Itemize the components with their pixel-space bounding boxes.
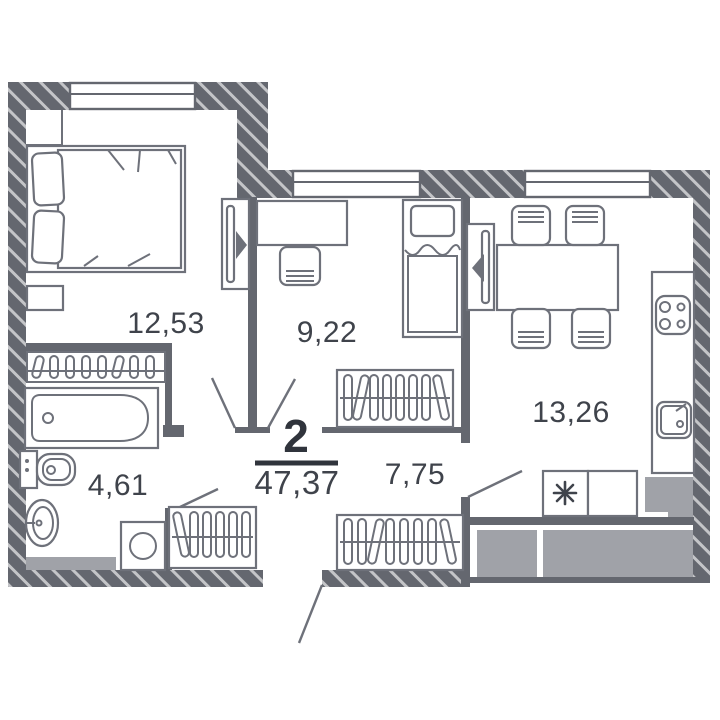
kitchen [467,206,694,516]
wall-step [237,108,268,198]
kitchen-sink [657,402,691,438]
kitchen-window [525,171,650,197]
fridge-asterisk [554,482,576,504]
fridge [543,471,588,516]
wall-left [8,82,26,587]
shaft-block [543,530,694,577]
door-bedroom [212,378,235,428]
wall-bottom-mid [322,570,470,587]
wardrobe-room2 [337,370,453,427]
area-label-bedroom2: 9,22 [297,316,357,349]
wall-top-bedroom-b [195,82,268,110]
total-area: 47,37 [254,464,339,501]
hallway [169,507,463,570]
wall-right [693,170,710,583]
area-label-kitchen: 13,26 [532,396,610,429]
shaft-block [477,530,537,577]
dining-chair [512,309,550,348]
tv-screen [227,206,234,282]
desk-chair [280,247,320,285]
pillow [411,206,454,236]
double-bed [27,146,185,272]
rooms-count: 2 [283,410,309,462]
wall-bottom-left [8,570,263,587]
floor-plan-svg: 12,53 9,22 13,26 4,61 7,75 2 47,37 [0,0,720,720]
pillow [32,210,65,263]
pillow [32,152,65,205]
wall-bathroom-top [26,343,172,352]
wall-top-mid-b [420,170,525,198]
nightstand [27,286,63,310]
wardrobe-hall-left [169,507,256,568]
tv-kitchen [467,224,494,310]
shaft-block [645,477,694,512]
bedroom [26,110,249,310]
bathroom [20,352,165,570]
wall-under-shaft [470,577,710,583]
wall-top-mid-a [268,170,293,198]
area-label-bathroom: 4,61 [88,469,148,502]
tv-bedroom [222,199,249,289]
bathtub [25,388,158,448]
wall-top-bedroom-a [8,82,70,110]
wall-bathroom-right-a [165,352,172,437]
kitchen-cabinet [588,471,637,516]
dining-chair [566,206,604,245]
single-bed [403,200,462,337]
area-label-bedroom: 12,53 [127,307,205,340]
towel-radiator [27,352,165,382]
wall-bathroom-stub [163,425,184,437]
desk [257,201,347,245]
door-wardrobe [180,489,218,507]
dining-chair [512,206,550,245]
room2-window [293,171,420,197]
dining-table [497,245,618,310]
door-kitchen [468,471,522,497]
wardrobe-hall-bottom [337,515,463,570]
toilet [20,451,75,488]
washing-machine [121,522,165,570]
wall-hall-a [235,427,270,433]
stove [656,296,690,334]
dining-chair [572,309,610,348]
area-label-hallway: 7,75 [385,458,445,491]
wall-kitchen-bottom [461,517,694,525]
door-entrance [299,585,322,643]
bedroom-window [70,83,195,109]
floor-plan: 12,53 9,22 13,26 4,61 7,75 2 47,37 [0,0,720,720]
washbasin [26,500,58,546]
